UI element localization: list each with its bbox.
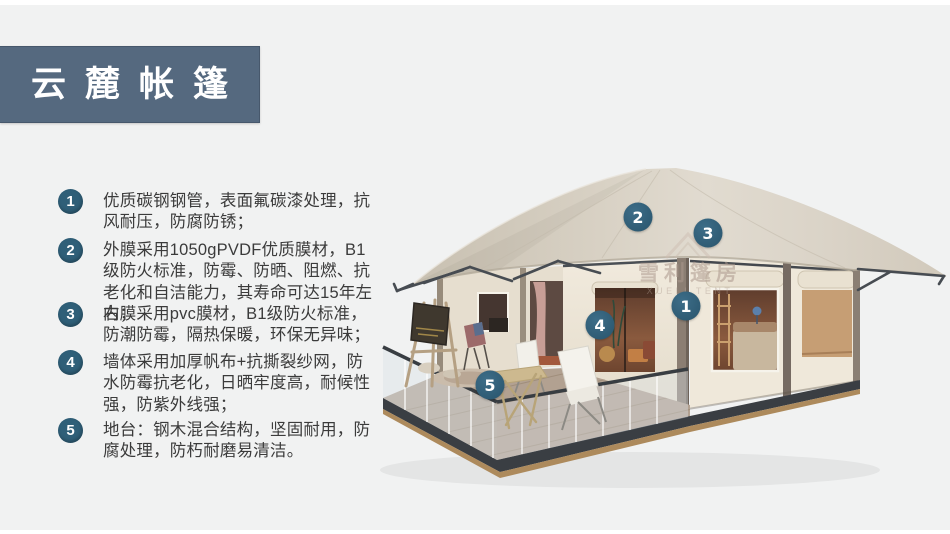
- tent-illustration: 雪利篷房 XUELI TENT 2 3 1 4 5: [378, 150, 950, 534]
- feature-number-badge: 4: [58, 350, 83, 375]
- feature-text: 墙体采用加厚帆布+抗撕裂纱网，防水防霉抗老化，日晒牢度高，耐候性强，防紫外线强；: [103, 352, 373, 416]
- feature-number-badge: 1: [58, 189, 83, 214]
- product-sheet: 云麓帐篷 1 优质碳钢钢管，表面氟碳漆处理，抗风耐压，防腐防锈； 2 外膜采用1…: [0, 0, 950, 534]
- pouf: [443, 370, 461, 379]
- feature-item-1: 1 优质碳钢钢管，表面氟碳漆处理，抗风耐压，防腐防锈；: [58, 191, 373, 234]
- feature-item-4: 4 墙体采用加厚帆布+抗撕裂纱网，防水防霉抗老化，日晒牢度高，耐候性强，防紫外线…: [58, 352, 373, 416]
- title-banner: 云麓帐篷: [0, 46, 260, 123]
- callout-1: 1: [672, 292, 701, 321]
- callout-5: 5: [476, 371, 505, 400]
- watermark-text-cn: 雪利篷房: [638, 261, 742, 285]
- svg-text:2: 2: [632, 208, 643, 227]
- feature-item-5: 5 地台：钢木混合结构，坚固耐用，防腐处理，防朽耐磨易清洁。: [58, 420, 373, 463]
- callout-3: 3: [694, 219, 723, 248]
- ground-shadow: [380, 452, 880, 488]
- feature-number-badge: 3: [58, 302, 83, 327]
- svg-text:3: 3: [702, 224, 713, 243]
- page-title: 云麓帐篷: [31, 67, 247, 102]
- feature-number-badge: 2: [58, 238, 83, 263]
- svg-text:1: 1: [680, 297, 691, 316]
- callout-2: 2: [624, 203, 653, 232]
- svg-text:4: 4: [594, 316, 605, 335]
- bottom-border-strip: [0, 530, 950, 534]
- lamp: [753, 307, 762, 316]
- covered-window: [798, 271, 856, 357]
- feature-text: 优质碳钢钢管，表面氟碳漆处理，抗风耐压，防腐防锈；: [103, 191, 373, 234]
- feature-text: 地台：钢木混合结构，坚固耐用，防腐处理，防朽耐磨易清洁。: [103, 420, 373, 463]
- easel-painting: [411, 303, 449, 345]
- callout-4: 4: [586, 311, 615, 340]
- pouf: [418, 363, 440, 374]
- feature-text: 内膜采用pvc膜材，B1级防火标准，防潮防霉，隔热保暖，环保无异味；: [103, 304, 373, 347]
- top-border-strip: [0, 0, 950, 5]
- feature-number-badge: 5: [58, 418, 83, 443]
- svg-text:5: 5: [484, 376, 495, 395]
- feature-item-3: 3 内膜采用pvc膜材，B1级防火标准，防潮防霉，隔热保暖，环保无异味；: [58, 304, 373, 347]
